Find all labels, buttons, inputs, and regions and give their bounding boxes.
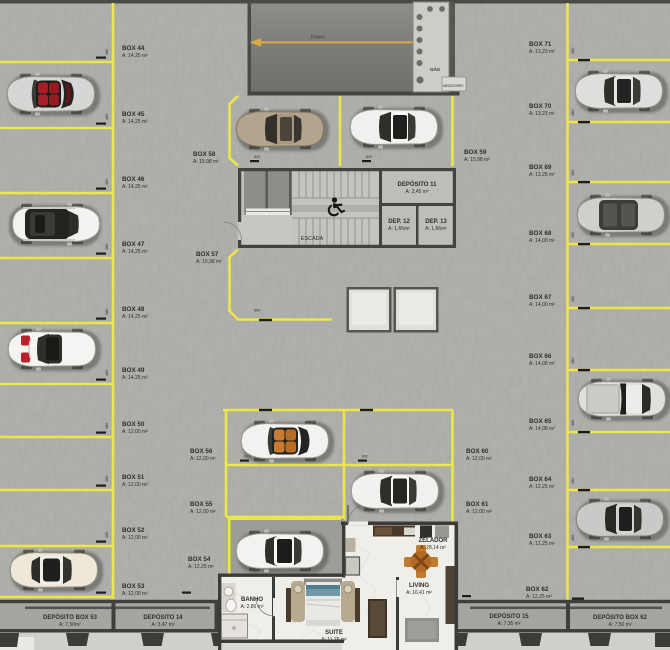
svg-text:A: 14,08 m²: A: 14,08 m² <box>529 426 555 432</box>
svg-text:A: 12,25 m²: A: 12,25 m² <box>529 541 555 547</box>
svg-text:A: 14,25 m²: A: 14,25 m² <box>122 119 148 125</box>
svg-text:A: 28,14 m²: A: 28,14 m² <box>420 545 446 551</box>
svg-text:A: 16,41 m²: A: 16,41 m² <box>406 590 432 596</box>
svg-text:GÁS: GÁS <box>430 66 440 72</box>
svg-text:BOX 49: BOX 49 <box>122 367 145 374</box>
svg-text:BOX 56: BOX 56 <box>190 448 213 455</box>
svg-text:A: 12,00 m²: A: 12,00 m² <box>122 429 148 435</box>
svg-text:A: 7,35 m²: A: 7,35 m² <box>497 621 520 627</box>
svg-text:A: 12,00 m²: A: 12,00 m² <box>122 482 148 488</box>
svg-text:480: 480 <box>105 179 109 185</box>
svg-text:BANHO: BANHO <box>241 597 263 603</box>
svg-text:A: 12,25 m²: A: 12,25 m² <box>529 484 555 490</box>
svg-text:ESCADA: ESCADA <box>301 236 324 242</box>
svg-text:480: 480 <box>571 358 575 364</box>
svg-text:BOX 46: BOX 46 <box>122 176 145 183</box>
svg-text:600: 600 <box>254 309 260 313</box>
svg-text:BOX 64: BOX 64 <box>529 476 552 483</box>
svg-text:RAMPA: RAMPA <box>311 35 326 40</box>
svg-text:480: 480 <box>105 476 109 482</box>
svg-text:BOX 62: BOX 62 <box>526 586 549 593</box>
svg-text:MEDIDORES: MEDIDORES <box>443 84 464 88</box>
svg-text:BOX 54: BOX 54 <box>188 556 211 563</box>
svg-text:480: 480 <box>105 114 109 120</box>
svg-text:A: 12,00 m²: A: 12,00 m² <box>466 509 492 515</box>
svg-text:A: 13,23 m²: A: 13,23 m² <box>529 111 555 117</box>
svg-text:BOX 55: BOX 55 <box>190 501 213 508</box>
svg-text:480: 480 <box>105 309 109 315</box>
svg-text:A: 14,08 m²: A: 14,08 m² <box>529 361 555 367</box>
svg-text:480: 480 <box>105 370 109 376</box>
svg-text:BOX 61: BOX 61 <box>466 501 489 508</box>
svg-text:BOX 53: BOX 53 <box>122 583 145 590</box>
svg-text:DEP. 12: DEP. 12 <box>388 219 410 225</box>
svg-text:BOX 47: BOX 47 <box>122 241 145 248</box>
svg-text:480: 480 <box>105 244 109 250</box>
svg-text:BOX 50: BOX 50 <box>122 421 145 428</box>
svg-text:A: 12,25 m²: A: 12,25 m² <box>188 564 214 570</box>
svg-text:DEPÓSITO 14: DEPÓSITO 14 <box>143 613 183 621</box>
svg-text:BOX 63: BOX 63 <box>529 533 552 540</box>
svg-text:BOX 51: BOX 51 <box>122 474 145 481</box>
svg-text:480: 480 <box>571 110 575 116</box>
svg-text:A: 14,25 m²: A: 14,25 m² <box>122 314 148 320</box>
svg-text:BOX 58: BOX 58 <box>193 151 216 158</box>
svg-text:A: 14,25 m²: A: 14,25 m² <box>122 375 148 381</box>
svg-text:A: 7,50m²: A: 7,50m² <box>59 622 81 628</box>
svg-text:A: 15,98 m²: A: 15,98 m² <box>464 157 490 163</box>
svg-text:480: 480 <box>571 232 575 238</box>
svg-text:BOX 44: BOX 44 <box>122 45 145 52</box>
svg-text:BOX 69: BOX 69 <box>529 164 552 171</box>
svg-text:A: 2,86 m²: A: 2,86 m² <box>240 604 263 610</box>
svg-text:BOX 59: BOX 59 <box>464 149 487 156</box>
svg-text:480: 480 <box>105 49 109 55</box>
svg-text:A: 12,00 m²: A: 12,00 m² <box>466 456 492 462</box>
svg-text:A: 13,25 m²: A: 13,25 m² <box>529 172 555 178</box>
svg-text:600: 600 <box>362 455 368 459</box>
svg-text:A: 13,23 m²: A: 13,23 m² <box>529 49 555 55</box>
svg-text:A: 12,00 m²: A: 12,00 m² <box>122 535 148 541</box>
svg-text:BOX 45: BOX 45 <box>122 111 145 118</box>
svg-text:A: 14,00 m²: A: 14,00 m² <box>529 238 555 244</box>
svg-text:DEPÓSITO 11: DEPÓSITO 11 <box>398 180 438 188</box>
svg-text:BOX 68: BOX 68 <box>529 230 552 237</box>
svg-text:A: 14,00 m²: A: 14,00 m² <box>529 302 555 308</box>
svg-text:480: 480 <box>571 420 575 426</box>
svg-text:DEPÓSITO BOX 53: DEPÓSITO BOX 53 <box>43 613 98 621</box>
svg-text:480: 480 <box>571 535 575 541</box>
svg-text:BOX 48: BOX 48 <box>122 306 145 313</box>
svg-text:A: 1,66m²: A: 1,66m² <box>425 226 447 232</box>
svg-text:BOX 57: BOX 57 <box>196 251 219 258</box>
svg-text:A: 14,25 m²: A: 14,25 m² <box>122 184 148 190</box>
svg-text:480: 480 <box>571 478 575 484</box>
svg-text:600: 600 <box>366 155 372 159</box>
svg-text:DEPÓSITO BOX 62: DEPÓSITO BOX 62 <box>593 613 648 621</box>
svg-text:A: 12,00 m²: A: 12,00 m² <box>122 591 148 597</box>
svg-text:BOX 67: BOX 67 <box>529 294 552 301</box>
svg-text:A: 12,00 m²: A: 12,00 m² <box>190 456 216 462</box>
svg-text:BOX 52: BOX 52 <box>122 527 145 534</box>
svg-text:600: 600 <box>254 155 260 159</box>
svg-text:DEP. 13: DEP. 13 <box>425 219 447 225</box>
svg-text:A: 14,25 m²: A: 14,25 m² <box>122 249 148 255</box>
svg-text:480: 480 <box>571 170 575 176</box>
svg-text:A: 14,25 m²: A: 14,25 m² <box>122 53 148 59</box>
svg-text:ZELADOR: ZELADOR <box>419 538 449 544</box>
svg-text:A: 11,76 m²: A: 11,76 m² <box>321 637 347 643</box>
svg-text:BOX 71: BOX 71 <box>529 41 552 48</box>
svg-text:BOX 66: BOX 66 <box>529 353 552 360</box>
svg-text:A: 3,47 m²: A: 3,47 m² <box>151 622 174 628</box>
svg-text:A: 15,98 m²: A: 15,98 m² <box>196 259 222 265</box>
svg-text:LIVING: LIVING <box>409 583 429 589</box>
svg-text:480: 480 <box>571 296 575 302</box>
svg-text:BOX 70: BOX 70 <box>529 103 552 110</box>
svg-text:A: 12,00 m²: A: 12,00 m² <box>190 509 216 515</box>
svg-text:480: 480 <box>105 532 109 538</box>
svg-text:A: 12,25 m²: A: 12,25 m² <box>526 594 552 600</box>
svg-text:SUITE: SUITE <box>325 630 343 636</box>
svg-text:A: 7,50 m²: A: 7,50 m² <box>608 622 631 628</box>
svg-text:A: 15,98 m²: A: 15,98 m² <box>193 159 219 165</box>
svg-text:BOX 60: BOX 60 <box>466 448 489 455</box>
svg-text:480: 480 <box>105 423 109 429</box>
svg-text:480: 480 <box>571 48 575 54</box>
svg-text:DEPÓSITO 15: DEPÓSITO 15 <box>489 612 529 620</box>
svg-text:BOX 65: BOX 65 <box>529 418 552 425</box>
svg-text:A: 3,45 m²: A: 3,45 m² <box>405 189 428 195</box>
svg-text:A: 1,66m²: A: 1,66m² <box>388 226 410 232</box>
